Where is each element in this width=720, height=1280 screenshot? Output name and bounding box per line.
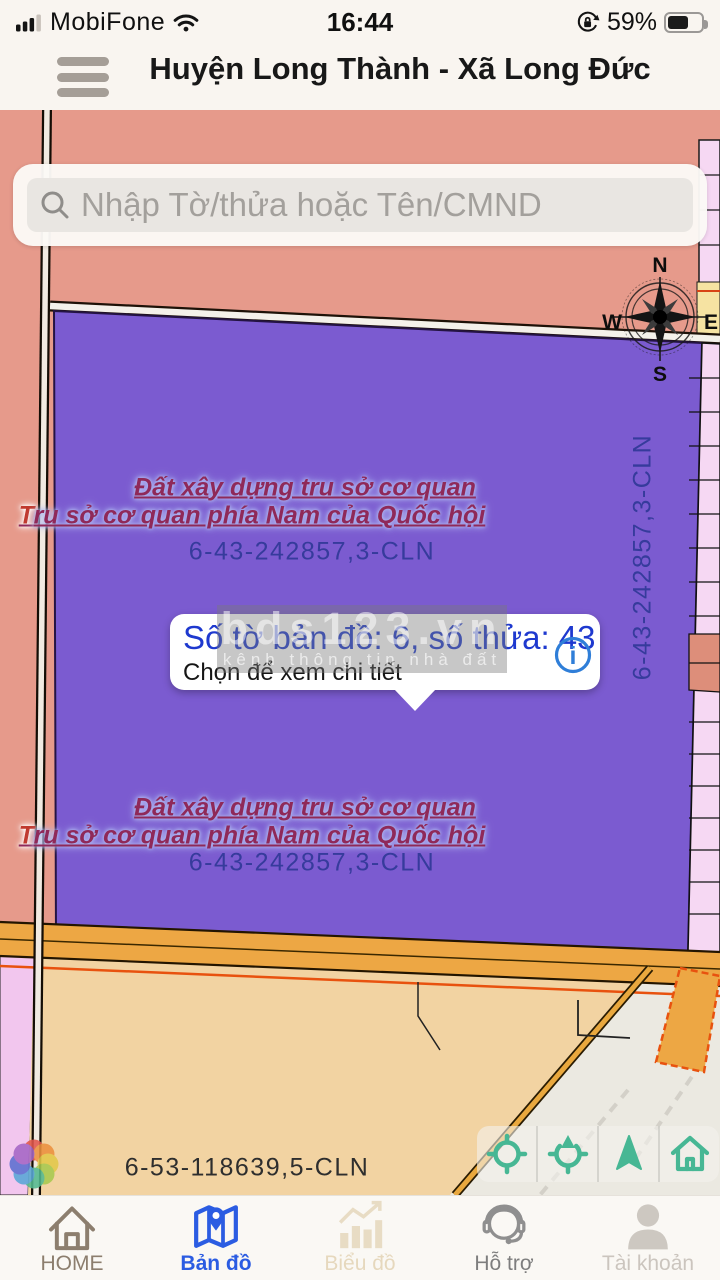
account-person-icon (620, 1198, 676, 1254)
compass-north-label: N (652, 254, 667, 277)
bottom-parcel-code-label: 6-53-118639,5-CLN (125, 1154, 370, 1183)
tab-account[interactable]: Tài khoản (576, 1196, 720, 1280)
info-glyph: i (570, 642, 577, 670)
battery-percent-label: 59% (607, 8, 657, 37)
search-bar (13, 164, 707, 246)
parcel-code-vertical-label: 6-43-242857,3-CLN (629, 434, 658, 680)
map-canvas[interactable]: N S W E Đất xây dựng tru sở cơ quan Tru … (0, 110, 720, 1195)
tab-support[interactable]: Hỗ trợ (432, 1196, 576, 1280)
menu-button[interactable] (57, 57, 109, 97)
locate-button[interactable] (477, 1126, 536, 1182)
info-button[interactable]: i (553, 635, 593, 675)
map-controls (477, 1126, 719, 1182)
tab-bar: HOME Bản đồ Biểu đồ (0, 1195, 720, 1280)
tab-home-label: HOME (41, 1252, 104, 1276)
parcel-name-line2: Tru sở cơ quan phía Nam của Quốc hội (19, 822, 486, 851)
orientation-lock-icon (575, 10, 600, 35)
map-icon (188, 1198, 244, 1254)
tab-map-label: Bản đồ (180, 1252, 251, 1276)
compass-heading-button[interactable] (536, 1126, 597, 1182)
popup-subtitle: Chọn để xem chi tiết (183, 659, 402, 687)
compass-west-label: W (602, 311, 622, 334)
compass-heading-icon (546, 1132, 590, 1176)
photos-flower-icon (7, 1137, 61, 1191)
bar-chart-icon (332, 1198, 388, 1254)
parcel-code-label: 6-43-242857,3-CLN (189, 538, 435, 567)
compass-east-label: E (704, 311, 718, 334)
battery-icon (664, 12, 704, 33)
search-input[interactable] (79, 185, 681, 225)
popup-title: Số tờ bản đồ: 6, số thửa: 43 (183, 619, 596, 657)
parcel-name-line1: Đất xây dựng tru sở cơ quan (134, 474, 476, 503)
north-arrow-icon (607, 1132, 651, 1176)
tab-home[interactable]: HOME (0, 1196, 144, 1280)
parcel-name-line2: Tru sở cơ quan phía Nam của Quốc hội (19, 502, 486, 531)
parcel-popup[interactable]: Số tờ bản đồ: 6, số thửa: 43 Chọn để xem… (170, 614, 600, 690)
parcel-name-line1: Đất xây dựng tru sở cơ quan (134, 794, 476, 823)
home-extent-button[interactable] (658, 1126, 719, 1182)
app-screen: MobiFone 16:44 59% Huyện Long Thành - Xã… (0, 0, 720, 1280)
status-bar: MobiFone 16:44 59% (0, 0, 720, 44)
tab-chart[interactable]: Biểu đồ (288, 1196, 432, 1280)
home-extent-icon (668, 1132, 712, 1176)
page-title: Huyện Long Thành - Xã Long Đức (120, 51, 680, 87)
parcel-code-label: 6-43-242857,3-CLN (189, 849, 435, 878)
compass-south-label: S (653, 363, 667, 386)
tab-support-label: Hỗ trợ (474, 1252, 533, 1276)
search-icon (39, 189, 71, 221)
header: Huyện Long Thành - Xã Long Đức (0, 44, 720, 110)
support-headset-icon (476, 1198, 532, 1254)
tab-account-label: Tài khoản (602, 1252, 694, 1276)
tab-map[interactable]: Bản đồ (144, 1196, 288, 1280)
home-icon (44, 1198, 100, 1254)
north-arrow-button[interactable] (597, 1126, 658, 1182)
locate-icon (485, 1132, 529, 1176)
tab-chart-label: Biểu đồ (324, 1252, 395, 1276)
